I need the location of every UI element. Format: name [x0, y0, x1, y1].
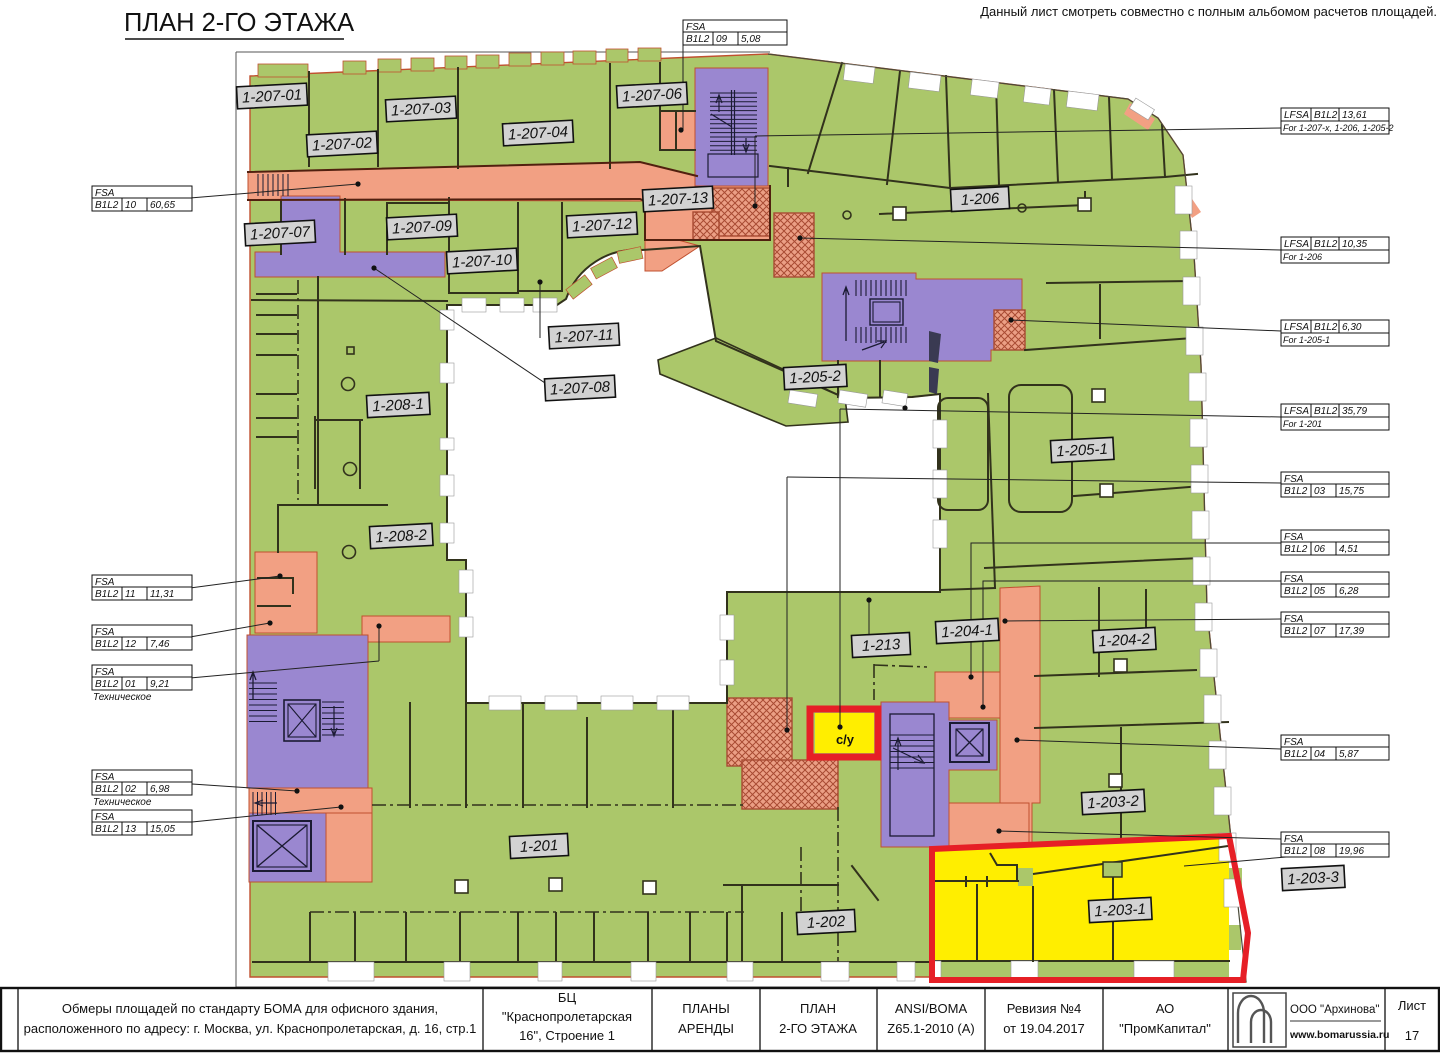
svg-text:FSA: FSA [1284, 474, 1304, 485]
svg-text:9,21: 9,21 [150, 679, 169, 690]
svg-text:1-207-06: 1-207-06 [622, 85, 684, 105]
svg-text:1-208-2: 1-208-2 [375, 527, 428, 547]
svg-text:1-207-11: 1-207-11 [554, 326, 614, 346]
svg-text:1-203-2: 1-203-2 [1087, 793, 1140, 813]
svg-text:B1L2: B1L2 [686, 34, 710, 45]
svg-text:LFSA: LFSA [1284, 406, 1309, 417]
svg-text:13: 13 [125, 824, 137, 835]
svg-text:от 19.04.2017: от 19.04.2017 [1003, 1021, 1085, 1036]
svg-text:05: 05 [1314, 586, 1326, 597]
svg-text:Данный лист смотреть совместно: Данный лист смотреть совместно с полным … [980, 4, 1437, 19]
svg-text:ПЛАН 2-ГО ЭТАЖА: ПЛАН 2-ГО ЭТАЖА [124, 9, 354, 37]
svg-text:Техническое: Техническое [93, 692, 152, 703]
svg-text:19,96: 19,96 [1339, 846, 1364, 857]
svg-text:Z65.1-2010 (A): Z65.1-2010 (A) [887, 1021, 974, 1036]
svg-text:ANSI/BOMA: ANSI/BOMA [895, 1001, 968, 1016]
svg-text:13,61: 13,61 [1342, 110, 1367, 121]
svg-text:B1L2: B1L2 [95, 589, 119, 600]
svg-text:ПЛАН: ПЛАН [800, 1001, 836, 1016]
svg-text:B1L2: B1L2 [95, 784, 119, 795]
svg-text:B1L2: B1L2 [1284, 749, 1308, 760]
svg-text:B1L2: B1L2 [1314, 406, 1338, 417]
svg-text:For 1-207-x, 1-206, 1-205-2: For 1-207-x, 1-206, 1-205-2 [1283, 123, 1394, 133]
svg-text:5,87: 5,87 [1339, 749, 1359, 760]
svg-text:35,79: 35,79 [1342, 406, 1367, 417]
svg-text:1-207-13: 1-207-13 [648, 189, 710, 209]
svg-text:1-205-2: 1-205-2 [789, 368, 842, 388]
svg-text:B1L2: B1L2 [1314, 322, 1338, 333]
svg-text:15,05: 15,05 [150, 824, 175, 835]
svg-text:1-203-1: 1-203-1 [1094, 901, 1147, 921]
svg-text:6,98: 6,98 [150, 784, 170, 795]
svg-text:09: 09 [716, 34, 728, 45]
svg-text:www.bomarussia.ru: www.bomarussia.ru [1289, 1029, 1389, 1041]
svg-text:АРЕНДЫ: АРЕНДЫ [678, 1021, 734, 1036]
svg-text:1-207-10: 1-207-10 [452, 251, 514, 271]
svg-text:АО: АО [1156, 1001, 1175, 1016]
svg-text:For 1-205-1: For 1-205-1 [1283, 335, 1330, 345]
svg-text:16", Строение 1: 16", Строение 1 [519, 1028, 615, 1043]
svg-text:B1L2: B1L2 [1314, 110, 1338, 121]
svg-text:1-202: 1-202 [806, 913, 846, 932]
svg-text:ООО "Архинова": ООО "Архинова" [1290, 1004, 1379, 1016]
svg-text:B1L2: B1L2 [95, 200, 119, 211]
svg-text:FSA: FSA [1284, 737, 1304, 748]
svg-text:15,75: 15,75 [1339, 486, 1364, 497]
svg-text:ПЛАНЫ: ПЛАНЫ [682, 1001, 729, 1016]
svg-text:1-213: 1-213 [861, 636, 901, 655]
svg-text:Ревизия №4: Ревизия №4 [1007, 1001, 1082, 1016]
svg-text:FSA: FSA [95, 627, 115, 638]
svg-text:03: 03 [1314, 486, 1326, 497]
svg-text:6,30: 6,30 [1342, 322, 1362, 333]
svg-text:Обмеры площадей по стандарту Б: Обмеры площадей по стандарту БОМА для оф… [62, 1001, 438, 1016]
svg-text:10,35: 10,35 [1342, 239, 1367, 250]
svg-text:7,46: 7,46 [150, 639, 170, 650]
svg-text:1-204-1: 1-204-1 [941, 622, 994, 642]
svg-text:1-207-08: 1-207-08 [550, 378, 612, 398]
svg-text:B1L2: B1L2 [1314, 239, 1338, 250]
svg-text:1-207-09: 1-207-09 [392, 217, 454, 237]
svg-text:LFSA: LFSA [1284, 110, 1309, 121]
svg-text:БЦ: БЦ [558, 990, 577, 1005]
svg-text:FSA: FSA [1284, 614, 1304, 625]
svg-text:11: 11 [125, 589, 135, 600]
svg-text:1-207-03: 1-207-03 [391, 99, 453, 119]
svg-text:1-207-04: 1-207-04 [508, 123, 569, 143]
svg-text:1-207-02: 1-207-02 [312, 134, 374, 154]
svg-text:06: 06 [1314, 544, 1326, 555]
svg-text:08: 08 [1314, 846, 1326, 857]
svg-text:FSA: FSA [95, 772, 115, 783]
svg-text:1-205-1: 1-205-1 [1056, 441, 1109, 461]
svg-text:B1L2: B1L2 [1284, 846, 1308, 857]
svg-text:10: 10 [125, 200, 137, 211]
svg-text:5,08: 5,08 [741, 34, 761, 45]
svg-text:01: 01 [125, 679, 136, 690]
svg-text:For 1-201: For 1-201 [1283, 419, 1322, 429]
svg-text:1-207-12: 1-207-12 [572, 215, 634, 235]
svg-text:17,39: 17,39 [1339, 626, 1364, 637]
svg-text:1-203-3: 1-203-3 [1287, 869, 1340, 889]
svg-text:B1L2: B1L2 [1284, 626, 1308, 637]
svg-text:1-201: 1-201 [519, 837, 558, 856]
svg-text:04: 04 [1314, 749, 1326, 760]
svg-text:FSA: FSA [95, 577, 115, 588]
svg-text:1-207-01: 1-207-01 [242, 86, 303, 106]
svg-text:FSA: FSA [686, 22, 706, 33]
svg-text:B1L2: B1L2 [95, 679, 119, 690]
svg-text:LFSA: LFSA [1284, 239, 1309, 250]
svg-text:FSA: FSA [1284, 532, 1304, 543]
svg-text:1-208-1: 1-208-1 [372, 396, 425, 416]
svg-text:1-206: 1-206 [960, 190, 1000, 209]
svg-text:12: 12 [125, 639, 137, 650]
svg-text:Лист: Лист [1398, 998, 1426, 1013]
svg-text:с/у: с/у [836, 732, 855, 747]
svg-text:Техническое: Техническое [93, 797, 152, 808]
svg-text:"Краснопролетарская: "Краснопролетарская [502, 1009, 632, 1024]
svg-text:02: 02 [125, 784, 137, 795]
svg-text:FSA: FSA [95, 667, 115, 678]
svg-text:"ПромКапитал": "ПромКапитал" [1119, 1021, 1211, 1036]
svg-text:B1L2: B1L2 [95, 639, 119, 650]
svg-text:FSA: FSA [1284, 574, 1304, 585]
svg-text:B1L2: B1L2 [95, 824, 119, 835]
svg-text:17: 17 [1405, 1028, 1419, 1043]
svg-text:60,65: 60,65 [150, 200, 175, 211]
svg-text:1-204-2: 1-204-2 [1098, 631, 1151, 651]
svg-text:B1L2: B1L2 [1284, 544, 1308, 555]
svg-text:2-ГО ЭТАЖА: 2-ГО ЭТАЖА [779, 1021, 857, 1036]
svg-text:6,28: 6,28 [1339, 586, 1359, 597]
svg-text:B1L2: B1L2 [1284, 586, 1308, 597]
svg-text:4,51: 4,51 [1339, 544, 1358, 555]
svg-text:11,31: 11,31 [150, 589, 174, 600]
svg-text:1-207-07: 1-207-07 [250, 223, 312, 243]
svg-text:FSA: FSA [95, 812, 115, 823]
svg-text:FSA: FSA [95, 188, 115, 199]
svg-text:расположенного по адресу: г. М: расположенного по адресу: г. Москва, ул.… [24, 1021, 477, 1036]
svg-text:FSA: FSA [1284, 834, 1304, 845]
svg-text:LFSA: LFSA [1284, 322, 1309, 333]
svg-text:For 1-206: For 1-206 [1283, 252, 1322, 262]
svg-text:07: 07 [1314, 626, 1326, 637]
svg-text:B1L2: B1L2 [1284, 486, 1308, 497]
